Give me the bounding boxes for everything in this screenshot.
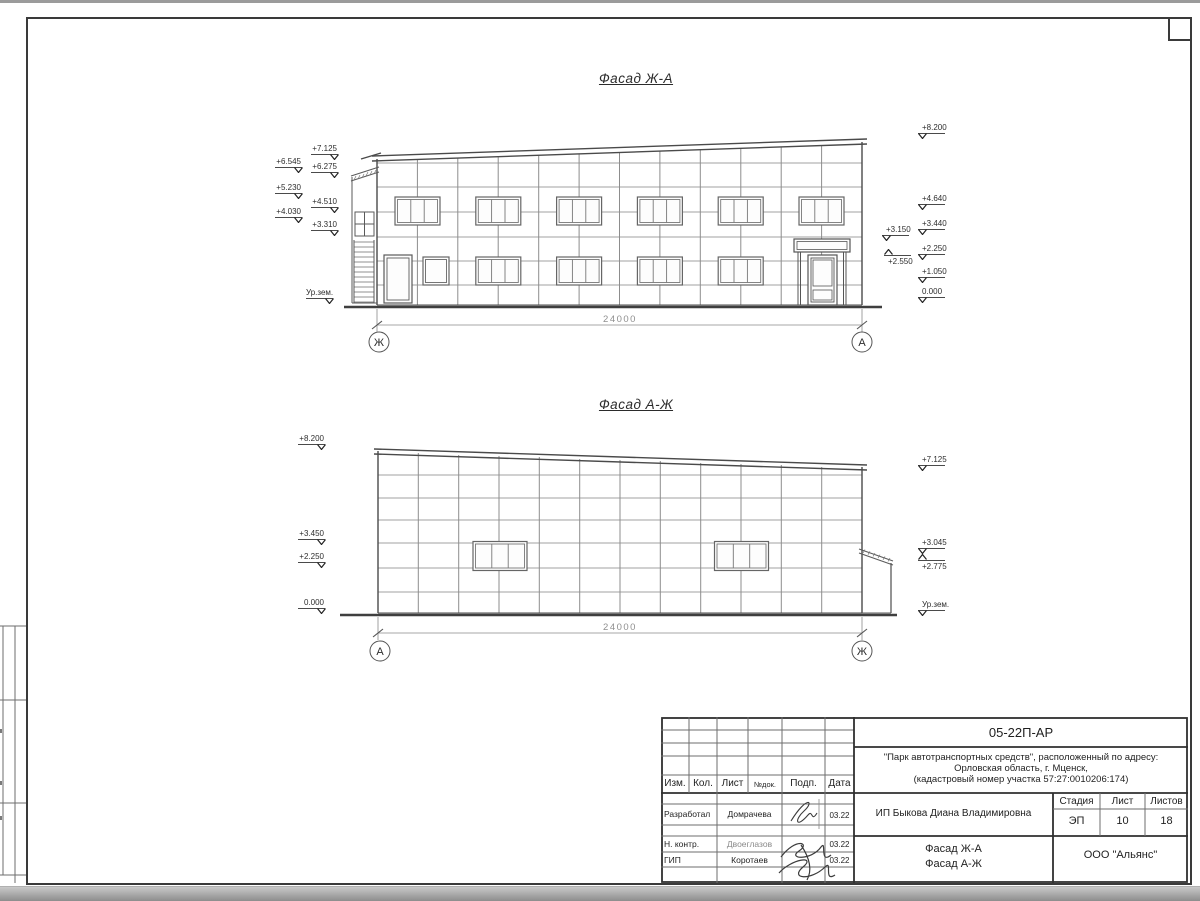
sheets-label: Листов	[1145, 796, 1188, 807]
elevation-mark: +6.545	[275, 157, 302, 168]
sheet-label: Лист	[1100, 796, 1145, 807]
stage-label: Стадия	[1053, 796, 1100, 807]
facade1-drawing: 24000 Ж А	[340, 130, 910, 360]
elevation-mark: +8.200	[298, 434, 325, 445]
project-description-line2: Орловская область, г. Мценск,	[857, 763, 1185, 774]
sheet-number: 10	[1100, 815, 1145, 827]
client-name: ИП Быкова Диана Владимировна	[854, 808, 1053, 819]
paper-edge-top	[0, 0, 1200, 3]
facade1-axis-right-label: А	[858, 337, 866, 349]
elevation-mark: 0.000	[298, 598, 325, 609]
elevation-mark: +1.050	[918, 267, 945, 278]
elevation-mark: +2.550	[884, 255, 911, 267]
stage-value: ЭП	[1053, 815, 1100, 827]
tb-col-kol: Кол.	[689, 778, 717, 789]
ground-level-mark: Ур.зем.	[918, 600, 945, 611]
facade2-windows	[473, 542, 769, 571]
elevation-mark: +5.230	[275, 183, 302, 194]
title-block: Изм. Кол. Лист №док. Подп. Дата Разработ…	[661, 717, 1188, 883]
elevation-mark: +3.310	[311, 220, 338, 231]
facade1-title: Фасад Ж-А	[556, 71, 716, 86]
facade1-square-window	[423, 257, 449, 285]
organization-name: ООО "Альянс"	[1053, 849, 1188, 861]
project-description-line3: (кадастровый номер участка 57:27:0010206…	[857, 774, 1185, 785]
tb-col-podp: Подп.	[782, 778, 825, 789]
facade2-axis-circles	[370, 641, 872, 661]
elevation-mark: +7.125	[918, 455, 945, 466]
tb-col-izm: Изм.	[661, 778, 689, 789]
sheets-total: 18	[1145, 815, 1188, 827]
document-code: 05-22П-АР	[854, 725, 1188, 740]
elevation-mark: +2.775	[918, 560, 945, 572]
facade1-entrance	[794, 239, 850, 305]
facade1-dimension-text: 24000	[603, 314, 637, 325]
facade1-stair-tower	[351, 167, 379, 303]
elevation-mark: +3.450	[298, 529, 325, 540]
elevation-mark: +4.640	[918, 194, 945, 205]
tb-date-0: 03.22	[825, 811, 854, 820]
tb-name-2: Коротаев	[717, 855, 782, 865]
tb-col-data: Дата	[825, 778, 854, 789]
elevation-mark: +3.440	[918, 219, 945, 230]
tb-col-list: Лист	[717, 778, 748, 789]
facade2-mullions	[418, 453, 821, 613]
corner-stamp-box	[1168, 19, 1191, 41]
tb-role-0: Разработал	[664, 809, 710, 819]
tb-col-ndok: №док.	[748, 780, 782, 789]
elevation-mark: 0.000	[918, 287, 945, 298]
paper-edge-bottom	[0, 886, 1200, 901]
tb-date-2: 03.22	[825, 856, 854, 865]
elevation-mark: +7.125	[311, 144, 338, 155]
tb-name-1: Двоеглазов	[717, 839, 782, 849]
doc-title-line1: Фасад Ж-А	[854, 843, 1053, 855]
facade2-drawing: 24000 А Ж	[340, 440, 910, 670]
facade2-axis-left-label: А	[376, 646, 384, 658]
facade1-axis-circles	[369, 332, 872, 352]
elevation-mark: +8.200	[918, 123, 945, 134]
facade2-dimension-text: 24000	[603, 622, 637, 633]
elevation-mark: +4.030	[275, 207, 302, 218]
facade2-annex	[859, 549, 893, 613]
tb-role-1: Н. контр.	[664, 839, 699, 849]
doc-title-line2: Фасад А-Ж	[854, 858, 1053, 870]
elevation-mark: +2.250	[918, 244, 945, 255]
ground-level-mark: Ур.зем.	[306, 288, 333, 299]
facade2-title: Фасад А-Ж	[556, 397, 716, 412]
elevation-mark: +3.045	[918, 538, 945, 549]
project-description-line1: "Парк автотранспортных средств", располо…	[857, 752, 1185, 763]
left-margin-stamp	[0, 620, 28, 883]
tb-date-1: 03.22	[825, 840, 854, 849]
elevation-mark: +6.275	[311, 162, 338, 173]
drawing-sheet: { "sheet": { "code": "05-22П-АР", "org":…	[0, 0, 1200, 900]
elevation-mark: +4.510	[311, 197, 338, 208]
elevation-mark: +3.150	[882, 225, 909, 236]
facade2-axis-right-label: Ж	[857, 646, 867, 658]
facade1-left-door	[384, 255, 412, 303]
tb-role-2: ГИП	[664, 855, 681, 865]
elevation-mark: +2.250	[298, 552, 325, 563]
tb-name-0: Домрачева	[717, 809, 782, 819]
facade1-axis-left-label: Ж	[374, 337, 384, 349]
